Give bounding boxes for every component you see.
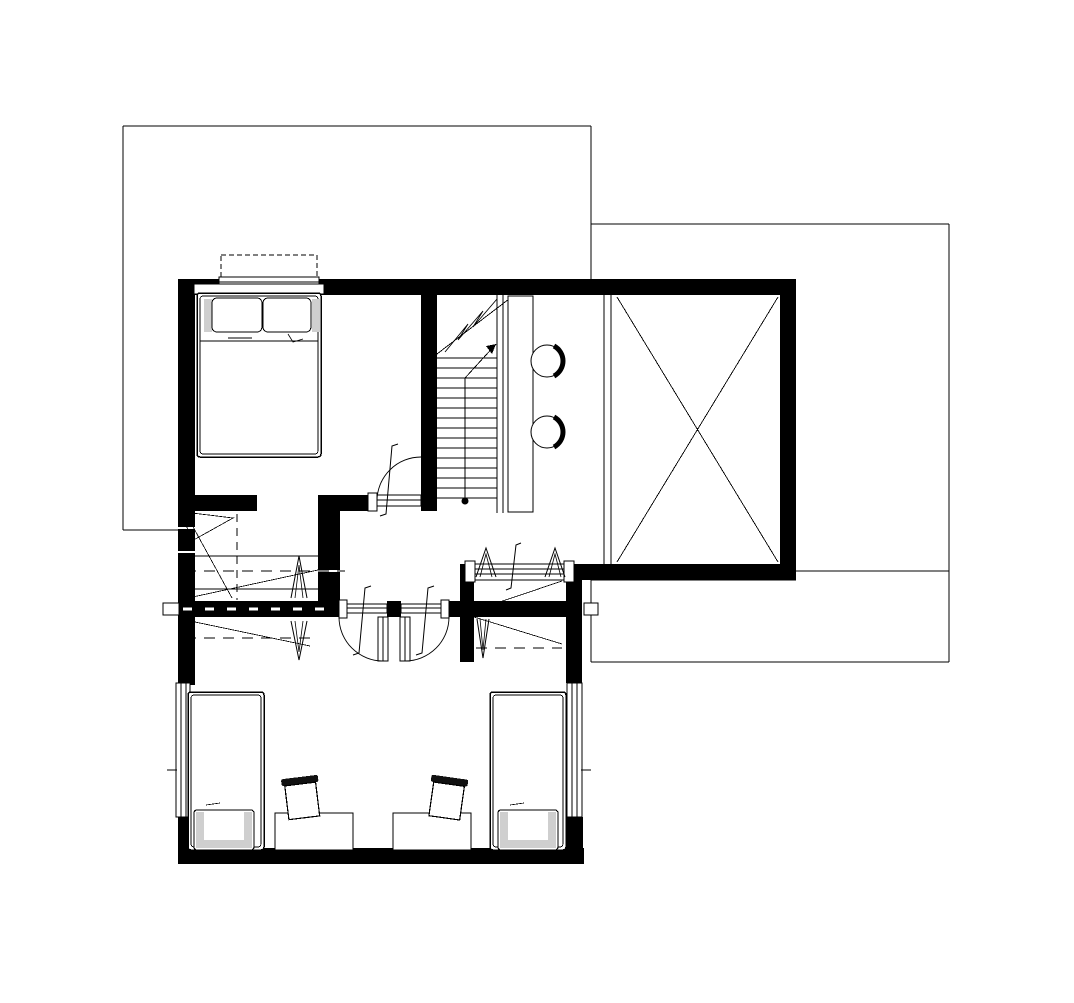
hall-right-door-arc <box>405 617 449 661</box>
kids-chair-2-seat <box>429 782 464 820</box>
mid-wall-endcap-left <box>163 603 179 615</box>
master-bed-pillow-right <box>263 298 311 332</box>
stair-arrow-head <box>486 344 496 354</box>
slope-diagonal-2 <box>188 570 318 598</box>
wall-bedroom-south-a <box>195 495 257 511</box>
stairs <box>433 295 513 513</box>
kids-bed-left-pillow-shadow-b <box>196 840 252 848</box>
wall-bedroom-stair <box>421 295 437 511</box>
stair-newel-dot <box>462 498 469 505</box>
wall-mid-right <box>447 601 566 617</box>
kids-right-window-frame <box>567 683 582 817</box>
swing-mark-hall-right-door <box>416 586 434 655</box>
bedroom-door-arc <box>377 457 421 501</box>
slope-diagonal-3 <box>195 622 310 646</box>
wall-kids-left-upper <box>178 617 195 685</box>
wall-void-right <box>780 295 796 580</box>
mid-wall-endcap-right <box>584 603 598 615</box>
floor-plan <box>0 0 1074 1003</box>
hanger-triangle-upper-outer <box>291 556 307 598</box>
master-bed-pillow-strip-left <box>204 299 212 332</box>
landing-desk <box>508 296 533 512</box>
wall-bedroom-south-b <box>318 495 374 511</box>
stair-break-zigzag <box>445 299 497 352</box>
master-bed-pillow-strip-right <box>312 299 320 332</box>
wall-void-bottom <box>566 564 796 580</box>
kids-bed-right-pillow-shadow-b <box>500 840 556 848</box>
wall_overlays <box>178 528 340 609</box>
closet_right <box>474 581 562 658</box>
hanger-triangle-lower-outer <box>291 621 307 660</box>
kids-chair-1-seat <box>285 782 320 820</box>
floor-plan-svg <box>0 0 1074 1003</box>
hall-window-frame <box>475 564 566 580</box>
hall-left-door-jamb <box>339 600 347 618</box>
bedroom-door-jamb <box>368 493 377 511</box>
hall-window-jamb-left <box>465 561 475 582</box>
master-bed-pillow-left <box>212 298 262 332</box>
hanger-triangle-outer <box>477 619 489 658</box>
master-window-dashed-outline <box>221 255 317 278</box>
hall-window-jamb-right <box>564 561 574 582</box>
wall-closet2-right <box>566 580 582 683</box>
void_room <box>604 295 778 564</box>
wall-left <box>178 295 195 617</box>
wall-mid-pier <box>387 601 401 617</box>
hall-right-door-jamb <box>441 600 449 618</box>
hall-left-door-arc <box>339 617 383 661</box>
swing-mark-hall-left-door <box>353 586 371 655</box>
kids-desk-1 <box>275 813 353 850</box>
